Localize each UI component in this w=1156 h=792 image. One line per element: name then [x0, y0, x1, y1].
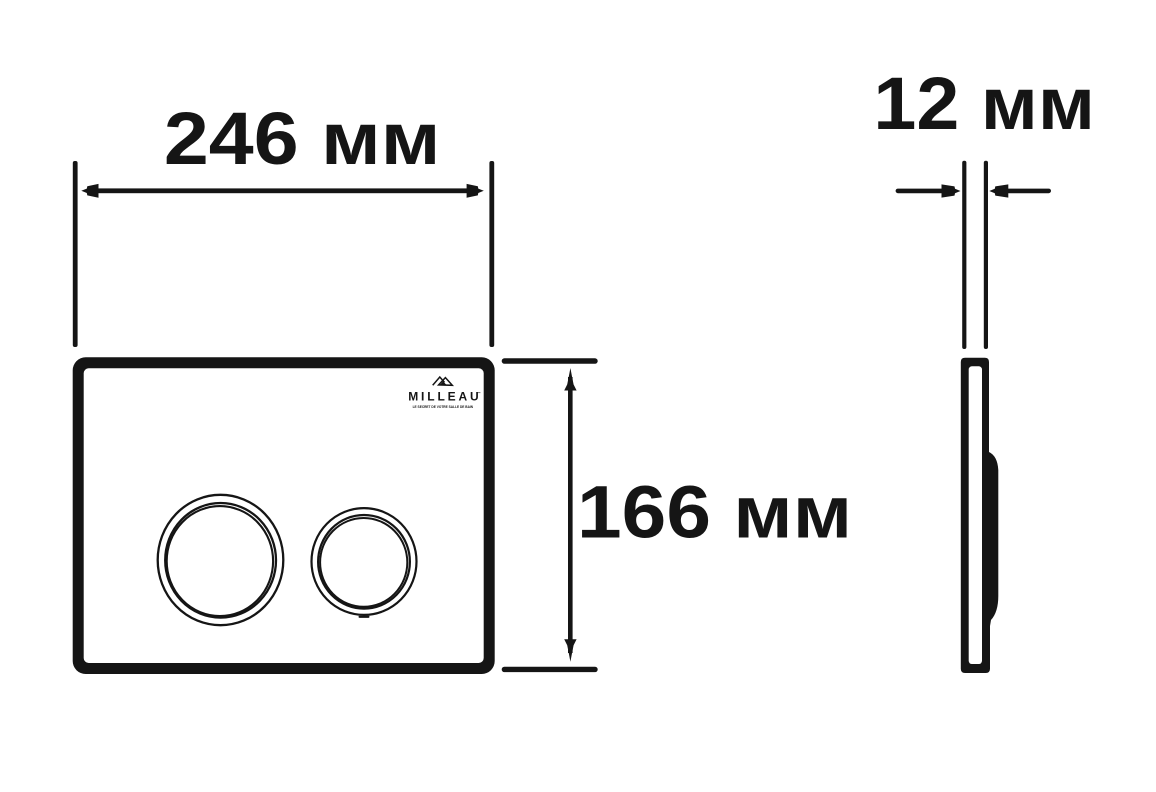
svg-text:246 мм: 246 мм — [164, 97, 441, 180]
svg-text:166 мм: 166 мм — [577, 471, 852, 554]
svg-text:LE SECRET DE VOTRE SALLE DE BA: LE SECRET DE VOTRE SALLE DE BAIN — [413, 405, 474, 409]
svg-text:12 мм: 12 мм — [873, 62, 1095, 145]
